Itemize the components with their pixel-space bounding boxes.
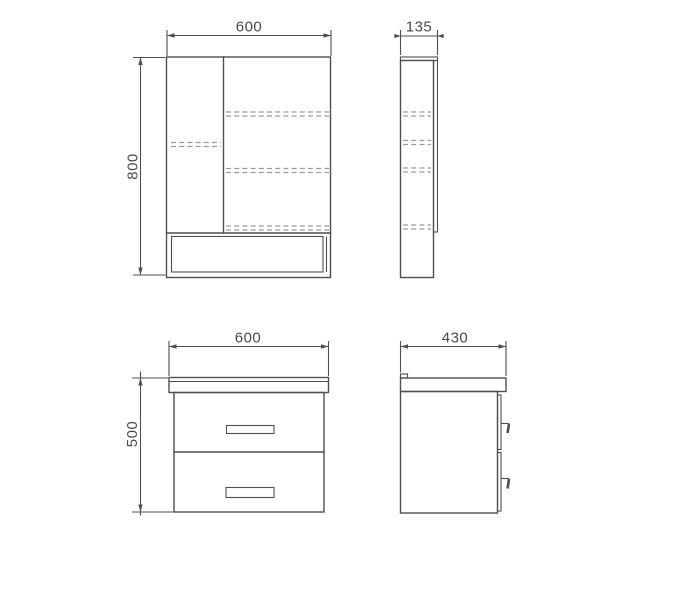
mirror-cabinet-side-outline <box>401 57 438 278</box>
countertop <box>169 378 329 393</box>
view-vanity-side: 430 <box>401 330 510 514</box>
dim-vanity-front-height: 500 <box>124 372 173 516</box>
dimension-label: 430 <box>442 330 469 347</box>
dimension-label: 135 <box>406 19 433 36</box>
cabinet-body <box>167 57 331 278</box>
dimension-label: 800 <box>125 153 142 180</box>
vanity-side-outline <box>401 374 507 513</box>
drawer-handle <box>227 426 275 434</box>
dimension-label: 600 <box>235 330 262 347</box>
dimension-label: 600 <box>236 19 263 36</box>
arrowhead-icon <box>395 34 401 38</box>
arrowhead-icon <box>169 344 177 348</box>
arrowhead-icon <box>138 378 142 386</box>
arrowhead-icon <box>321 344 329 348</box>
mirror-cabinet-outline <box>167 57 331 278</box>
side-carcass <box>401 61 434 278</box>
view-vanity-front: 600 500 <box>124 330 329 516</box>
vanity-front-outline <box>169 378 329 513</box>
dim-mirror-front-width: 600 <box>167 19 331 57</box>
drawer-handle <box>226 488 274 498</box>
drawer-handle-profiles <box>501 424 509 489</box>
arrowhead-icon <box>138 505 142 513</box>
view-mirror-cabinet-front: 600 800 <box>125 19 332 278</box>
handle-profile-grip <box>508 479 509 489</box>
countertop-side <box>401 378 507 392</box>
arrowhead-icon <box>438 34 444 38</box>
vanity-body-side <box>401 392 498 514</box>
view-mirror-cabinet-side: 135 <box>394 19 444 278</box>
open-shelf-niche <box>172 237 324 273</box>
hidden-shelf-lines-front <box>171 112 329 230</box>
dim-mirror-front-height: 800 <box>125 58 166 276</box>
arrowhead-icon <box>138 58 142 66</box>
arrowhead-icon <box>138 268 142 276</box>
furniture-dimension-drawing: 600 800 <box>0 0 675 600</box>
dimension-label: 500 <box>124 421 141 448</box>
handle-profile-grip <box>508 424 509 433</box>
arrowhead-icon <box>401 344 409 348</box>
technical-drawing-canvas: 600 800 <box>0 0 675 600</box>
drawer-front-strip <box>498 453 502 512</box>
dim-vanity-front-width: 600 <box>169 330 329 377</box>
hidden-shelf-lines-side <box>403 112 431 229</box>
arrowhead-icon <box>324 33 332 37</box>
dim-vanity-side-depth: 430 <box>401 330 507 377</box>
drawer-front-strip <box>498 395 502 450</box>
dim-mirror-side-depth: 135 <box>394 19 444 56</box>
arrowhead-icon <box>499 344 507 348</box>
arrowhead-icon <box>167 33 175 37</box>
